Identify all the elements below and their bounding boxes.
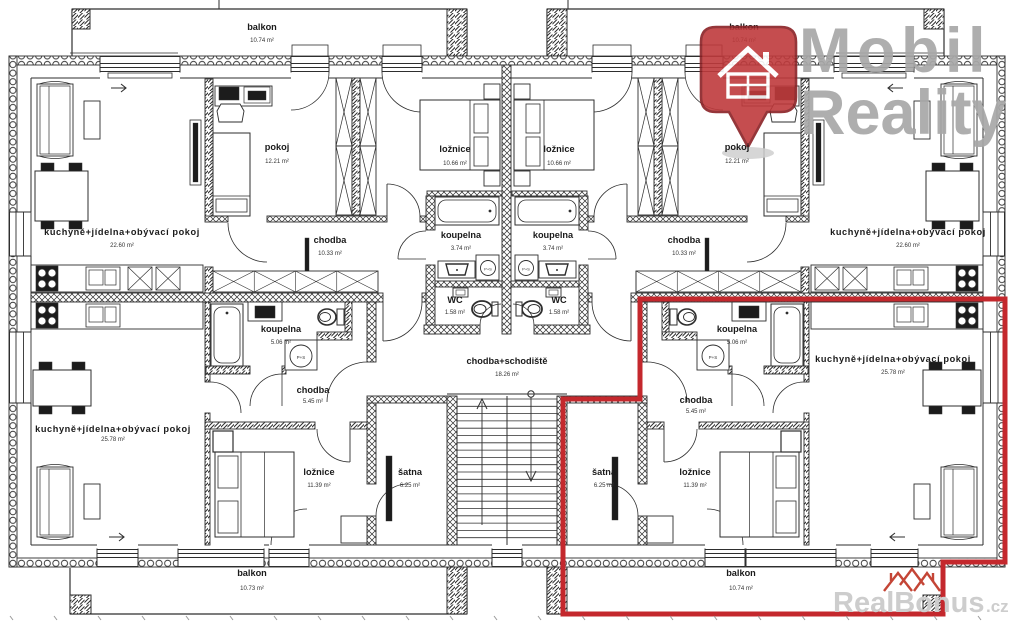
svg-text:kuchyně+jídelna+obývací pokoj: kuchyně+jídelna+obývací pokoj bbox=[815, 354, 971, 364]
svg-text:12.21 m²: 12.21 m² bbox=[265, 159, 289, 165]
svg-text:Reality: Reality bbox=[800, 78, 1007, 148]
svg-text:10.74 m²: 10.74 m² bbox=[250, 38, 274, 44]
svg-text:10.66 m²: 10.66 m² bbox=[443, 161, 467, 167]
svg-text:6.25 m²: 6.25 m² bbox=[594, 483, 614, 489]
svg-text:5.06 m²: 5.06 m² bbox=[727, 340, 747, 346]
svg-text:3.74 m²: 3.74 m² bbox=[451, 246, 471, 252]
svg-text:chodba: chodba bbox=[668, 235, 702, 245]
svg-text:5.06 m²: 5.06 m² bbox=[271, 340, 291, 346]
svg-text:1.58 m²: 1.58 m² bbox=[549, 310, 569, 316]
svg-text:šatna: šatna bbox=[398, 467, 423, 477]
svg-text:kuchyně+jídelna+obývací pokoj: kuchyně+jídelna+obývací pokoj bbox=[830, 227, 986, 237]
svg-text:25.78 m²: 25.78 m² bbox=[101, 437, 125, 443]
svg-text:koupelna: koupelna bbox=[441, 230, 482, 240]
svg-text:kuchyně+jídelna+obývací pokoj: kuchyně+jídelna+obývací pokoj bbox=[35, 424, 191, 434]
svg-text:11.39 m²: 11.39 m² bbox=[683, 483, 706, 489]
svg-text:6.25 m²: 6.25 m² bbox=[400, 483, 420, 489]
svg-text:12.21 m²: 12.21 m² bbox=[725, 159, 749, 165]
svg-text:ložnice: ložnice bbox=[679, 467, 710, 477]
svg-text:balkon: balkon bbox=[237, 568, 267, 578]
svg-text:WC: WC bbox=[447, 295, 463, 305]
svg-text:koupelna: koupelna bbox=[261, 324, 302, 334]
svg-text:10.66 m²: 10.66 m² bbox=[547, 161, 571, 167]
svg-text:P+S: P+S bbox=[484, 267, 492, 272]
svg-text:kuchyně+jídelna+obývací pokoj: kuchyně+jídelna+obývací pokoj bbox=[44, 227, 200, 237]
svg-text:Mobil: Mobil bbox=[799, 16, 991, 86]
svg-text:.cz: .cz bbox=[986, 597, 1009, 616]
svg-text:ložnice: ložnice bbox=[303, 467, 334, 477]
svg-text:10.74 m²: 10.74 m² bbox=[729, 586, 753, 592]
svg-text:5.45 m²: 5.45 m² bbox=[303, 399, 323, 405]
svg-text:10.73 m²: 10.73 m² bbox=[240, 586, 264, 592]
svg-text:balkon: balkon bbox=[726, 568, 756, 578]
svg-text:25.78 m²: 25.78 m² bbox=[881, 370, 905, 376]
svg-text:chodba: chodba bbox=[314, 235, 348, 245]
svg-text:10.33 m²: 10.33 m² bbox=[318, 251, 342, 257]
svg-text:P+S: P+S bbox=[297, 355, 306, 360]
svg-text:11.39 m²: 11.39 m² bbox=[307, 483, 330, 489]
svg-text:pokoj: pokoj bbox=[265, 142, 290, 152]
svg-text:22.60 m²: 22.60 m² bbox=[896, 243, 920, 249]
svg-text:P+S: P+S bbox=[709, 355, 718, 360]
svg-text:pokoj: pokoj bbox=[725, 142, 750, 152]
svg-text:3.74 m²: 3.74 m² bbox=[543, 246, 563, 252]
svg-text:šatna: šatna bbox=[592, 467, 617, 477]
svg-text:5.45 m²: 5.45 m² bbox=[686, 409, 706, 415]
svg-text:18.26 m²: 18.26 m² bbox=[495, 372, 519, 378]
svg-text:10.33 m²: 10.33 m² bbox=[672, 251, 696, 257]
svg-text:koupelna: koupelna bbox=[717, 324, 758, 334]
svg-text:22.60 m²: 22.60 m² bbox=[110, 243, 134, 249]
svg-text:balkon: balkon bbox=[247, 22, 277, 32]
svg-text:ložnice: ložnice bbox=[439, 144, 470, 154]
svg-text:RealBonus: RealBonus bbox=[833, 587, 984, 619]
svg-text:koupelna: koupelna bbox=[533, 230, 574, 240]
svg-text:P+S: P+S bbox=[522, 267, 530, 272]
svg-text:ložnice: ložnice bbox=[543, 144, 574, 154]
svg-text:chodba: chodba bbox=[297, 385, 331, 395]
svg-text:WC: WC bbox=[551, 295, 567, 305]
svg-text:1.58 m²: 1.58 m² bbox=[445, 310, 465, 316]
svg-text:chodba+schodiště: chodba+schodiště bbox=[467, 356, 548, 366]
svg-text:chodba: chodba bbox=[680, 395, 714, 405]
